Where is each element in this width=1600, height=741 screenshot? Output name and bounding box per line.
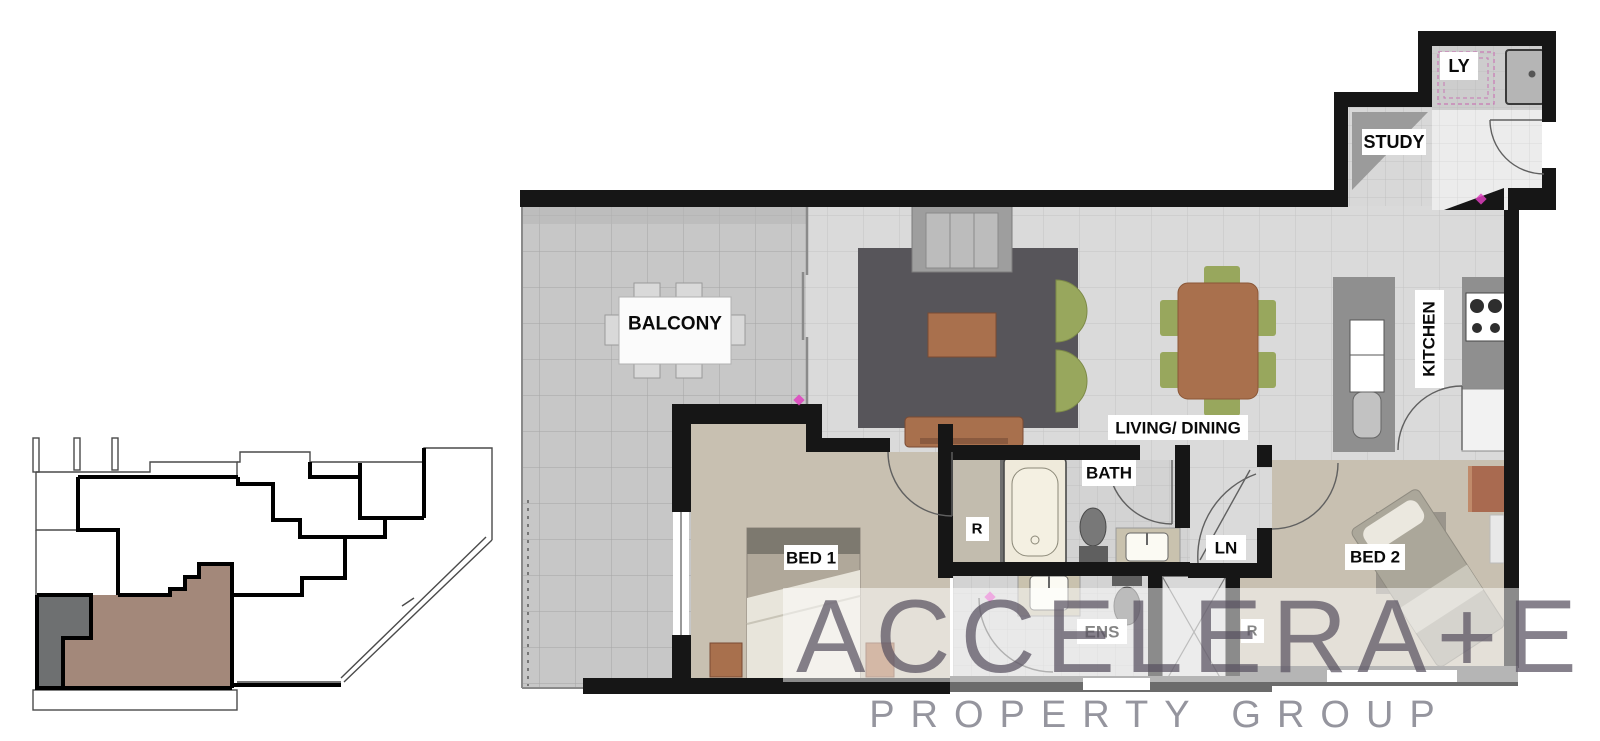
- sofa-icon: [905, 417, 1023, 447]
- bath-label: BATH: [1086, 464, 1132, 483]
- watermark: ACCELERA+E PROPERTY GROUP: [783, 579, 1600, 736]
- nightstand-icon: [710, 643, 742, 677]
- key-plan: [33, 438, 492, 710]
- watermark-brand: ACCELERA+E: [796, 579, 1587, 695]
- floor-plan-drawing: BALCONY LIVING/ DINING KITCHEN STUDY LY …: [0, 0, 1600, 741]
- vanity-icon: [1116, 528, 1180, 565]
- kitchen-island-icon: [1333, 277, 1395, 452]
- bed2-label: BED 2: [1350, 548, 1400, 567]
- watermark-tagline: PROPERTY GROUP: [869, 694, 1451, 736]
- study-label: STUDY: [1363, 132, 1424, 152]
- floor-plan-page: BALCONY LIVING/ DINING KITCHEN STUDY LY …: [0, 0, 1600, 741]
- toilet-icon: [1079, 508, 1108, 562]
- washer-icon: [1506, 50, 1544, 104]
- tv-unit-icon: [912, 205, 1012, 272]
- balcony-label: BALCONY: [628, 314, 722, 335]
- kitchen-label: KITCHEN: [1420, 301, 1439, 377]
- living-dining-label: LIVING/ DINING: [1115, 419, 1241, 438]
- robe1-floor: [953, 460, 1002, 565]
- linen-label: LN: [1215, 539, 1238, 558]
- bed1-label: BED 1: [786, 549, 836, 568]
- bedside-icon: [1490, 515, 1504, 563]
- laundry-label: LY: [1448, 56, 1469, 76]
- bathtub-icon: [1004, 456, 1066, 568]
- coffee-table-icon: [928, 313, 996, 357]
- robe1-label: R: [972, 521, 983, 538]
- cooktop-icon: [1462, 277, 1508, 451]
- bed2-chair-icon: [1472, 466, 1505, 512]
